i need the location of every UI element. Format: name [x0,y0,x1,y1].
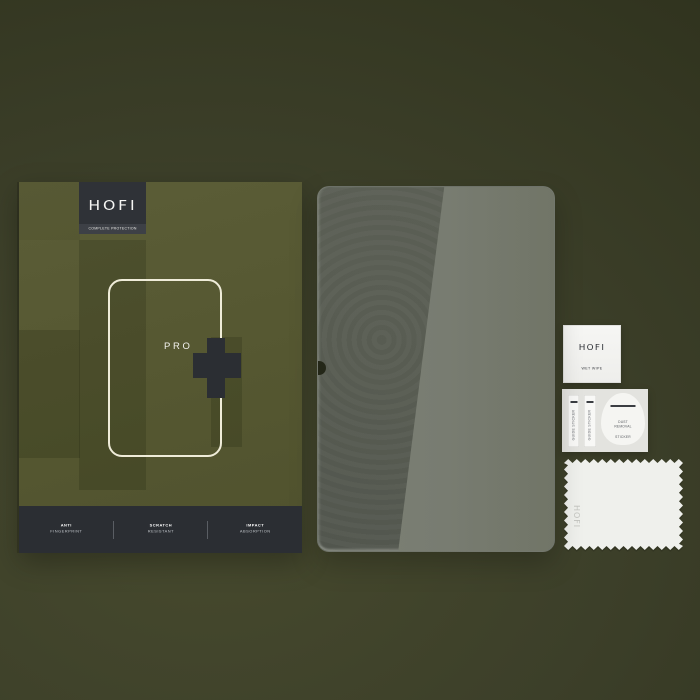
guide-sticker-mark [570,401,577,403]
guide-sticker-label: GUIDE STICKER [572,410,575,441]
product-box: HOFI COMPLETE PROTECTION PRO ANTI FINGER… [19,182,302,553]
feature-impact-absorption: IMPACT ABSORPTION [208,520,302,539]
features-bar: ANTI FINGERPRINT SCRATCH RESISTANT IMPAC… [19,506,302,553]
feature-subtitle: ABSORPTION [240,530,271,536]
dust-sticker-label-line2: STICKER [611,435,635,440]
dust-sticker-label: DUST REMOVAL STICKER [601,417,645,442]
guide-sticker-mark [587,401,594,403]
feature-subtitle: RESISTANT [147,530,173,536]
wet-wipe-label: WET WIPE [575,367,610,371]
sticker-sheet: GUIDE STICKER GUIDE STICKER DUST REMOVAL… [562,389,648,452]
dust-sticker-label-line1: DUST REMOVAL [611,420,635,430]
dust-removal-sticker: DUST REMOVAL STICKER [601,393,645,445]
guide-sticker-label: GUIDE STICKER [588,410,591,441]
brand-logo: HOFI [88,198,137,213]
feature-scratch-resistant: SCRATCH RESISTANT [114,520,208,539]
product-photo: HOFI COMPLETE PROTECTION PRO ANTI FINGER… [0,0,700,700]
glass-screen-protector [317,186,555,552]
feature-subtitle: FINGERPRINT [50,530,82,536]
guide-sticker: GUIDE STICKER [568,395,579,447]
wet-wipe-brand: HOFI [560,343,624,352]
microfiber-cloth: HOFI [564,459,683,550]
box-pattern-tile [19,330,80,458]
guide-sticker: GUIDE STICKER [584,395,596,447]
wet-wipe-packet: HOFI WET WIPE [563,325,621,383]
product-line-label: PRO [164,341,193,352]
cloth-brand: HOFI [572,505,581,528]
box-pattern-tile [19,182,80,240]
brand-logo-block: HOFI [79,182,146,224]
feature-anti-fingerprint: ANTI FINGERPRINT [19,520,113,539]
plus-icon-horizontal-bar [193,353,241,378]
brand-tagline-text: COMPLETE PROTECTION [88,227,136,230]
brand-tagline: COMPLETE PROTECTION [79,224,146,234]
dust-sticker-mark [611,405,636,407]
